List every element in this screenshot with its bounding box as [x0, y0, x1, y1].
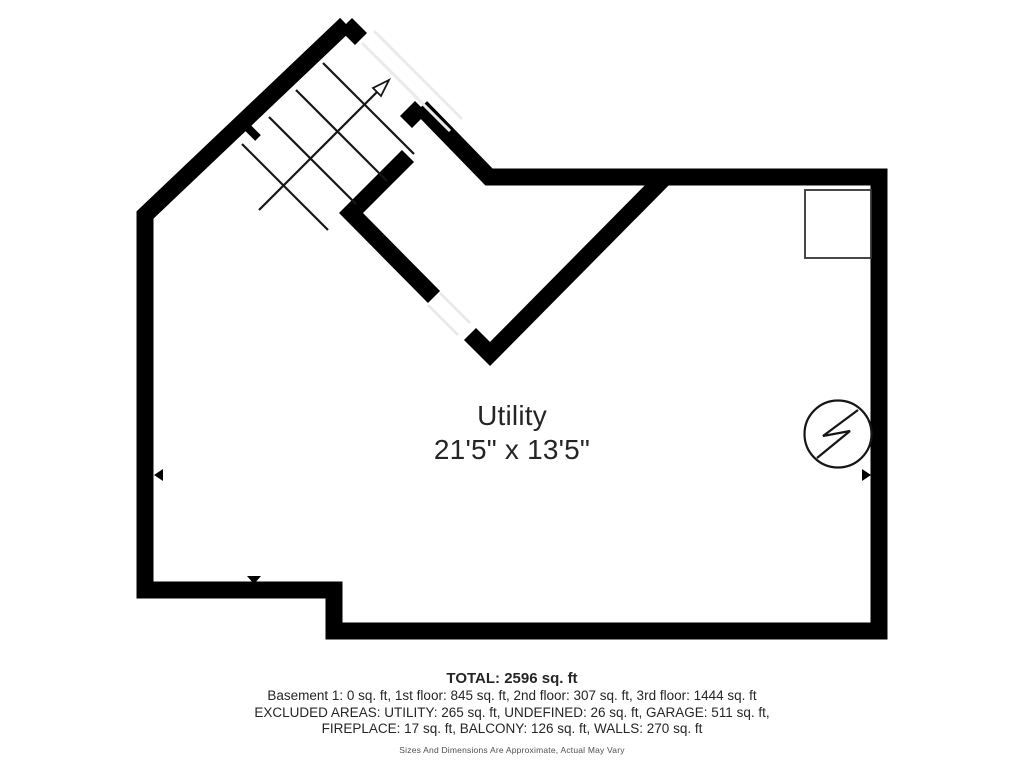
- room-label: Utility 21'5" x 13'5": [0, 399, 1024, 467]
- fixture-box: [805, 190, 871, 258]
- stair-tread: [323, 63, 414, 154]
- floor-areas-text: Basement 1: 0 sq. ft, 1st floor: 845 sq.…: [0, 688, 1024, 705]
- wall-end-cap-top-left: [346, 24, 361, 39]
- interior-wall-left: [351, 156, 434, 297]
- area-summary: TOTAL: 2596 sq. ft Basement 1: 0 sq. ft,…: [0, 671, 1024, 759]
- door-opening-line: [428, 305, 458, 335]
- stair-tread: [269, 117, 356, 204]
- wall-marker-left: [154, 469, 163, 481]
- floor-plan-drawing: [0, 0, 1024, 768]
- total-area-text: TOTAL: 2596 sq. ft: [0, 671, 1024, 688]
- room-dimensions: 21'5" x 13'5": [0, 433, 1024, 467]
- wall-marker-right: [862, 469, 871, 481]
- stair-base-tick: [247, 127, 258, 138]
- disclaimer-text: Sizes And Dimensions Are Approximate, Ac…: [0, 742, 1024, 759]
- door-opening-line: [440, 293, 470, 323]
- stair-tread: [242, 144, 328, 230]
- excluded-areas-text-line2: FIREPLACE: 17 sq. ft, BALCONY: 126 sq. f…: [0, 721, 1024, 738]
- wall-end-cap-stair-right: [406, 107, 421, 122]
- stair-tread: [296, 90, 387, 181]
- excluded-areas-text-line1: EXCLUDED AREAS: UTILITY: 265 sq. ft, UND…: [0, 705, 1024, 722]
- room-name: Utility: [0, 399, 1024, 433]
- interior-wall-right: [470, 176, 666, 354]
